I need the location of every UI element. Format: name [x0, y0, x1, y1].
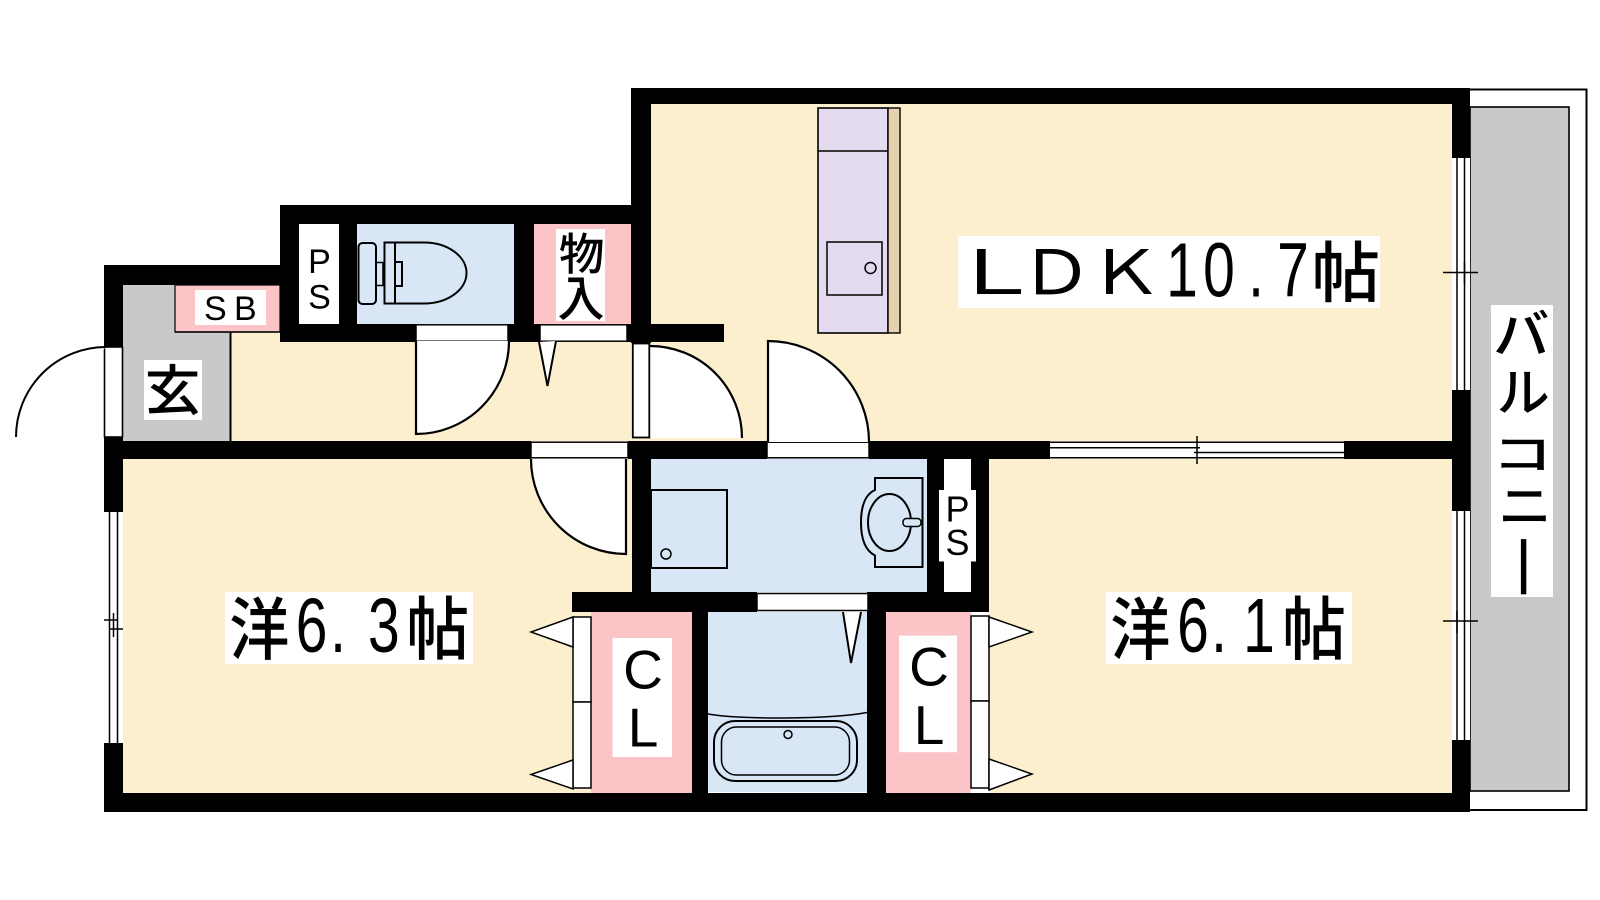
svg-text:P: P — [308, 243, 331, 281]
svg-text:1: 1 — [1243, 584, 1275, 669]
svg-text:S: S — [945, 522, 969, 563]
svg-text:6: 6 — [1177, 584, 1209, 669]
svg-text:.: . — [1211, 584, 1227, 669]
svg-text:C: C — [623, 638, 663, 700]
svg-text:C: C — [909, 636, 949, 698]
svg-text:1: 1 — [1166, 228, 1198, 313]
svg-text:.: . — [330, 584, 346, 669]
svg-text:3: 3 — [368, 584, 400, 669]
svg-text:S: S — [308, 278, 331, 316]
svg-text:S: S — [204, 290, 227, 328]
svg-text:B: B — [234, 290, 257, 328]
svg-text:7: 7 — [1277, 228, 1309, 313]
svg-text:6: 6 — [296, 584, 328, 669]
svg-text:L: L — [628, 697, 659, 759]
svg-text:L: L — [914, 694, 945, 756]
svg-text:0: 0 — [1203, 228, 1235, 313]
svg-text:.: . — [1248, 228, 1264, 313]
